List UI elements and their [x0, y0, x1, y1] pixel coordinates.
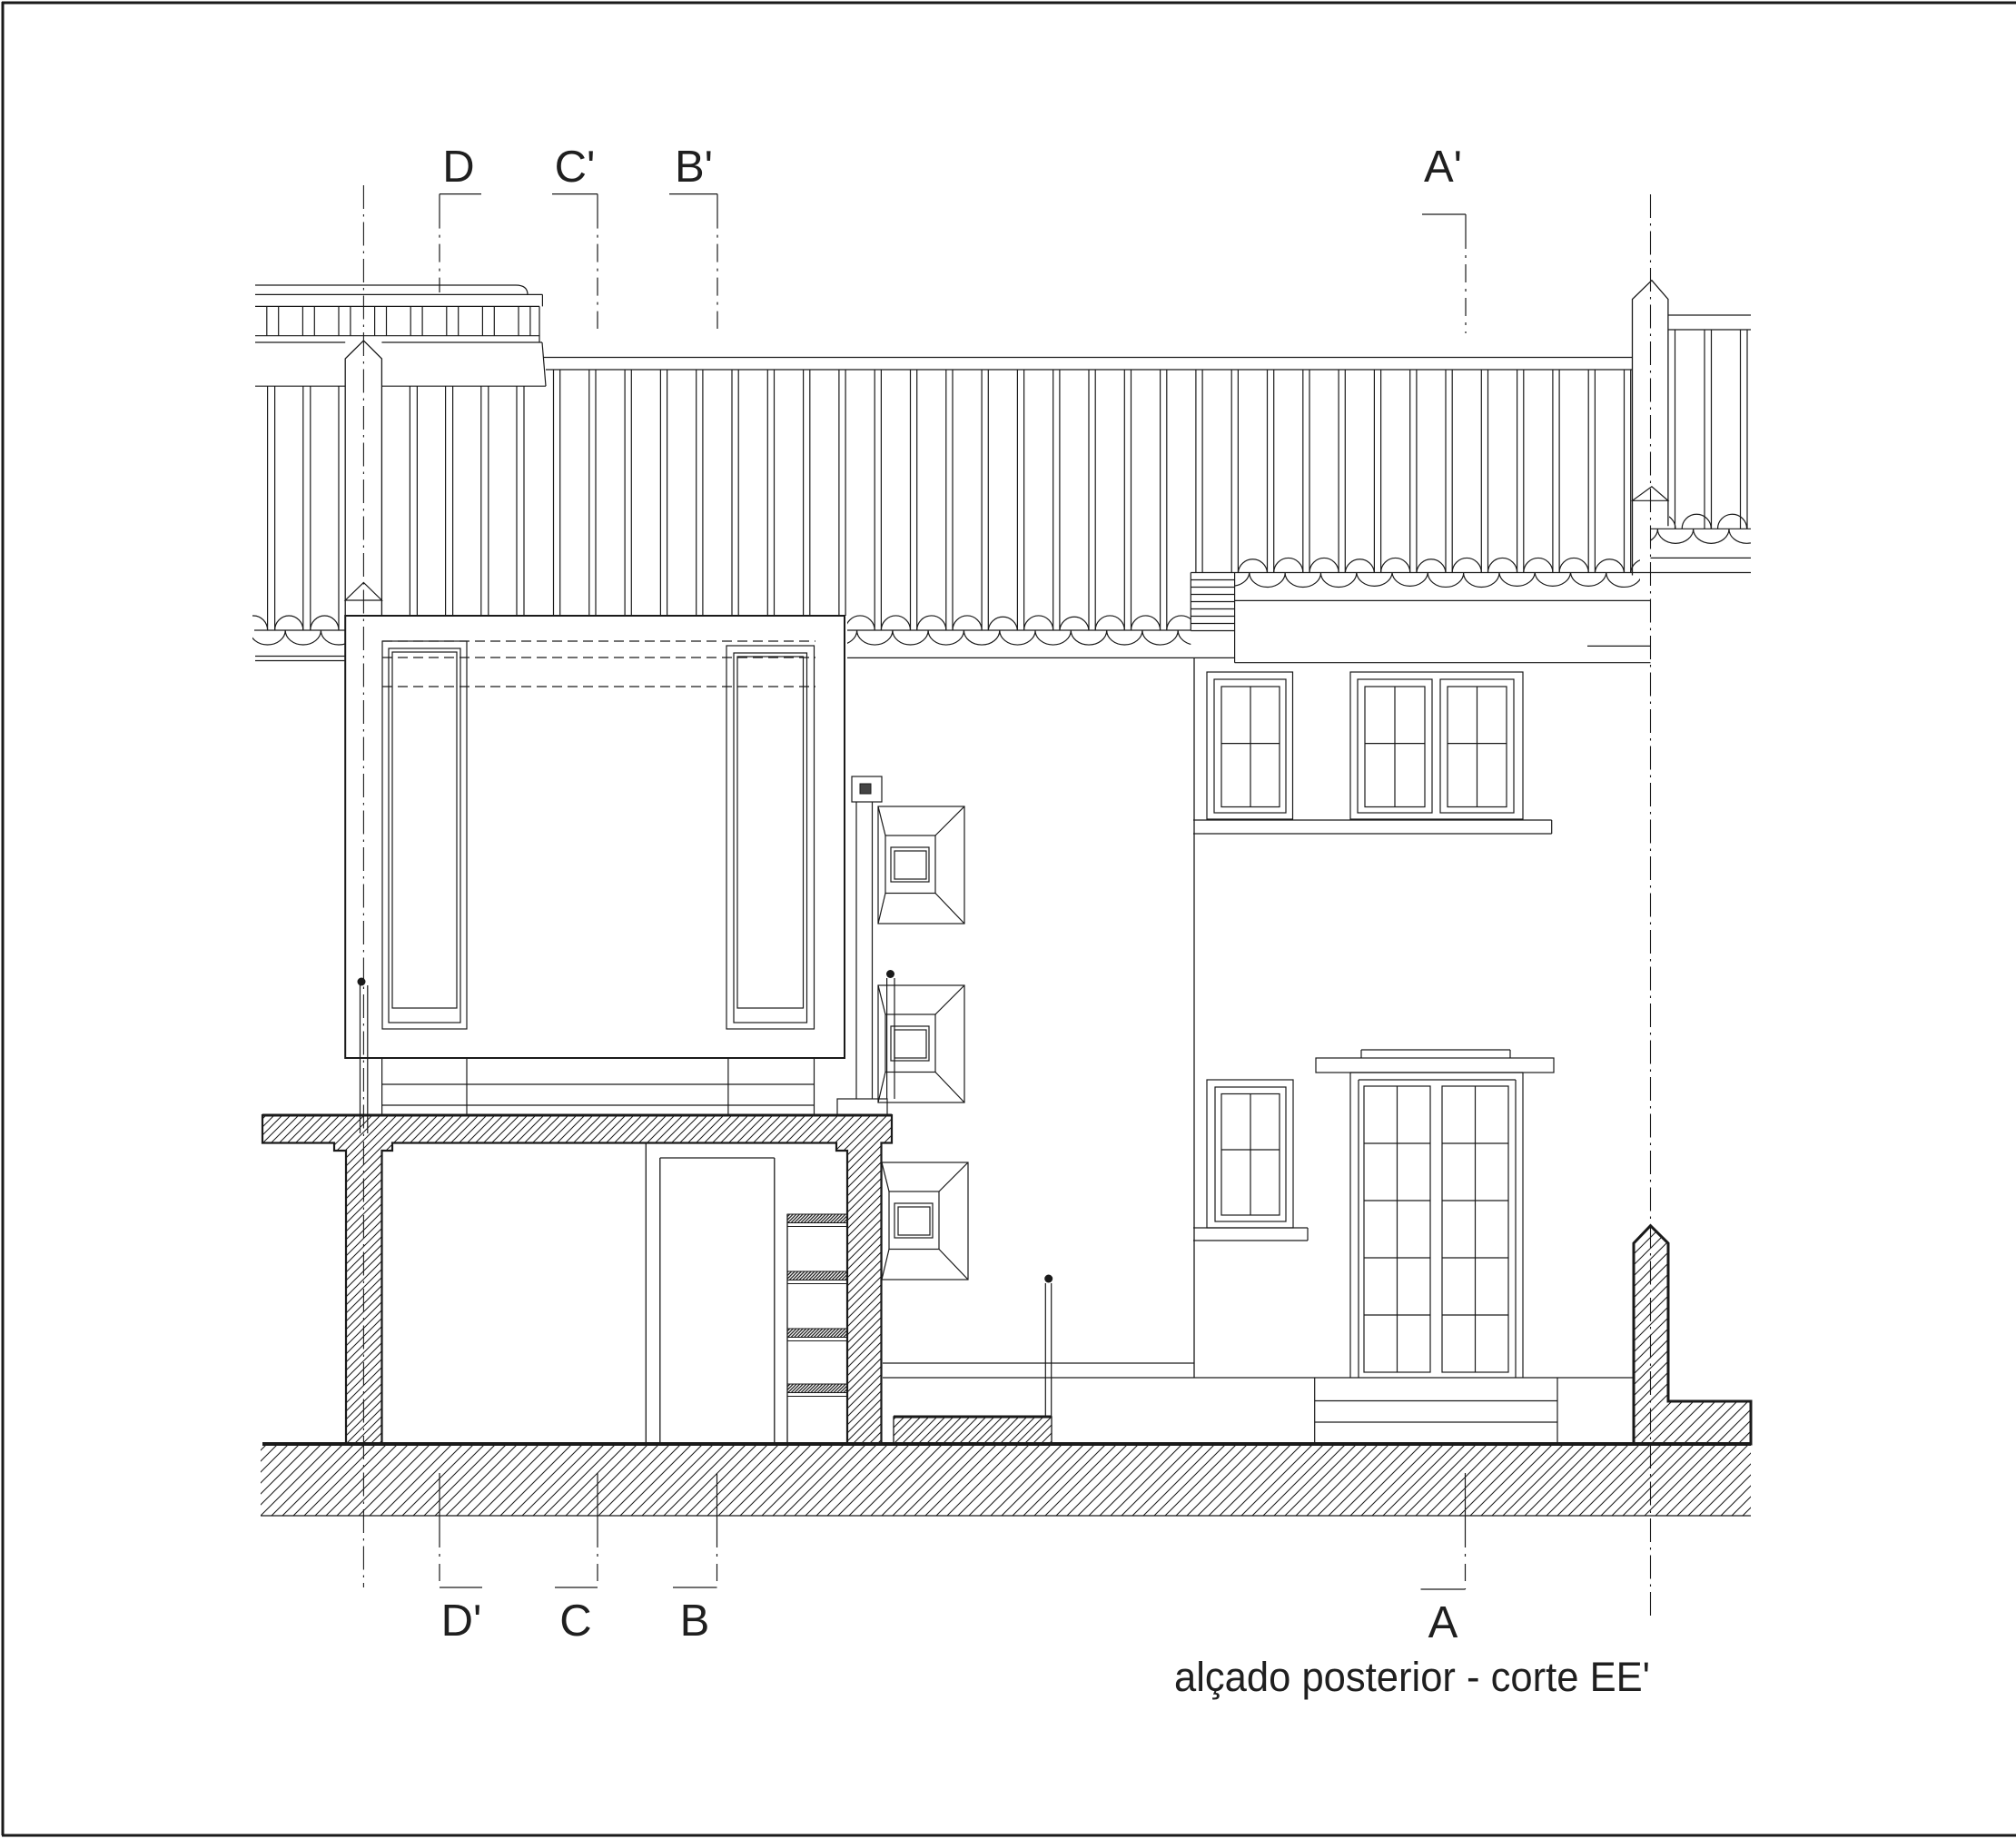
svg-text:D': D': [441, 1597, 482, 1646]
svg-text:D: D: [442, 143, 474, 192]
svg-text:alçado posterior - corte EE': alçado posterior - corte EE': [1174, 1654, 1650, 1700]
svg-text:C: C: [559, 1597, 591, 1646]
svg-text:B': B': [675, 143, 713, 192]
svg-text:C': C': [555, 143, 596, 192]
svg-text:A': A': [1424, 143, 1462, 192]
svg-text:A: A: [1428, 1598, 1458, 1647]
svg-text:B: B: [680, 1597, 710, 1646]
